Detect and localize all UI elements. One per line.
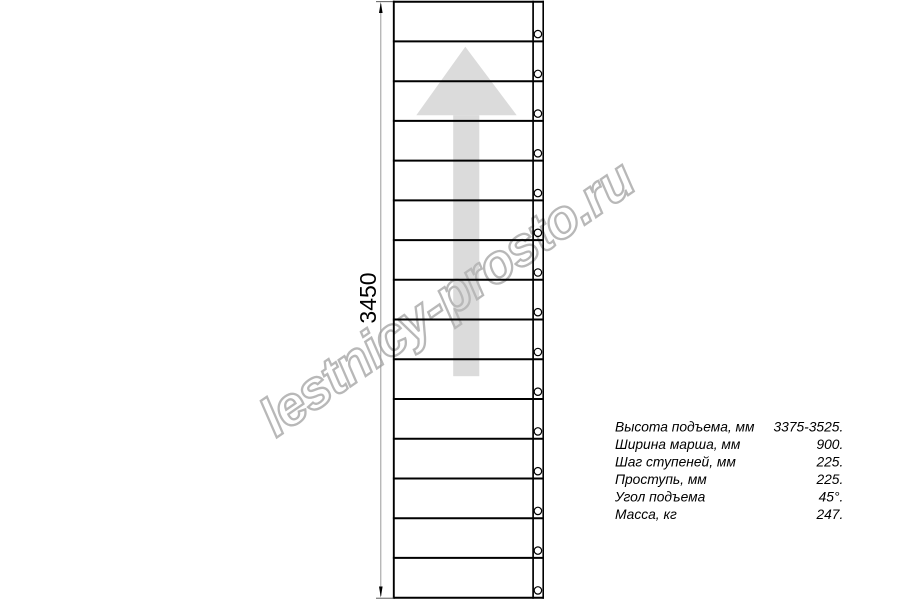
svg-text:Ширина марша, мм: Ширина марша, мм [615,437,741,452]
svg-text:225.: 225. [815,472,843,487]
svg-text:3375-3525.: 3375-3525. [773,420,843,435]
svg-text:225.: 225. [815,455,843,470]
svg-text:Масса, кг: Масса, кг [615,507,677,522]
svg-text:Высота подъема, мм: Высота подъема, мм [615,420,755,435]
svg-text:Угол подъема: Угол подъема [614,490,706,505]
svg-text:Шаг ступеней, мм: Шаг ступеней, мм [615,455,736,470]
svg-text:247.: 247. [815,507,843,522]
svg-text:45°.: 45°. [819,490,844,505]
svg-text:900.: 900. [816,437,843,452]
svg-text:Проступь, мм: Проступь, мм [615,472,707,487]
svg-text:3450: 3450 [355,272,381,323]
